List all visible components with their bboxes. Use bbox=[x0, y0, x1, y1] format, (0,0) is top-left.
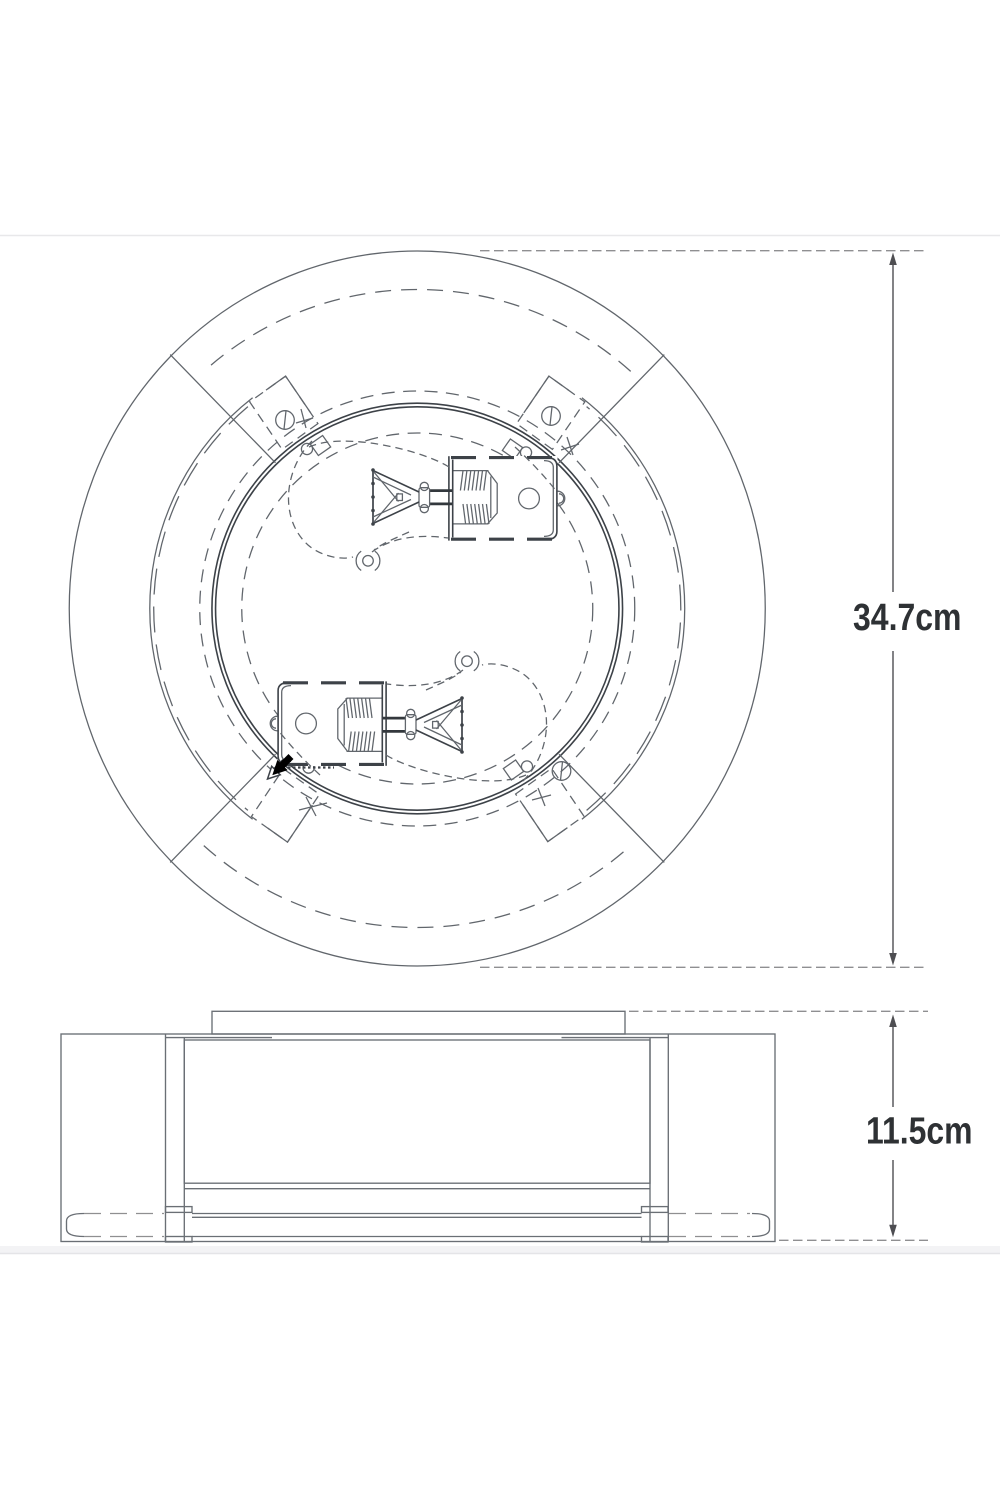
svg-text:11.5cm: 11.5cm bbox=[866, 1111, 973, 1153]
svg-text:34.7cm: 34.7cm bbox=[853, 597, 962, 639]
